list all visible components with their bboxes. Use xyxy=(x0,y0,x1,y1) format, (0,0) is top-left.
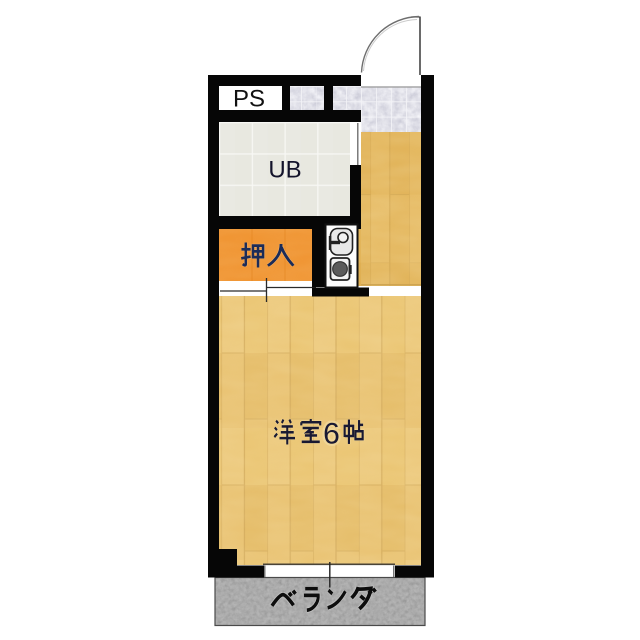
svg-text:6: 6 xyxy=(323,418,340,451)
svg-text:PS: PS xyxy=(233,86,265,113)
svg-text:UB: UB xyxy=(268,157,301,184)
